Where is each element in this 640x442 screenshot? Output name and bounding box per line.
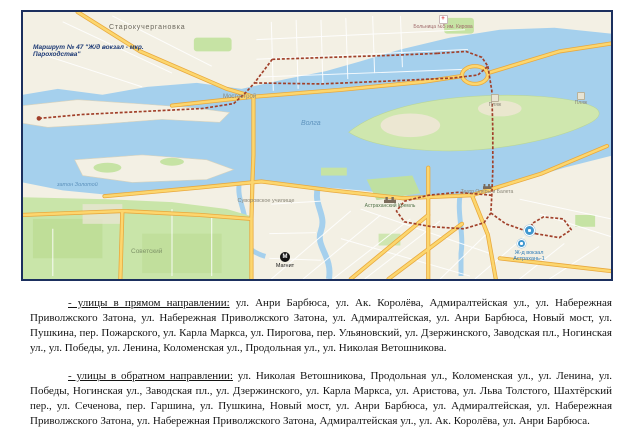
theatre-icon — [483, 184, 492, 189]
gardens-label: Советский — [131, 248, 162, 255]
route-title-label: Маршрут № 47 "Ж/д вокзал - мкр. Пароходс… — [33, 44, 145, 59]
kremlin-icon — [384, 197, 396, 203]
beach-icon — [491, 94, 499, 102]
gardens-area — [23, 197, 253, 279]
theatre-label: Театр Оперы и Балета — [459, 184, 515, 196]
river-label: Волга — [301, 120, 321, 128]
hospital-poi: + Больница №5 им. Кирова — [405, 15, 481, 31]
beach-icon — [577, 92, 585, 100]
forward-direction-lead: - улицы в прямом направлении: — [68, 297, 230, 309]
district-label: Мостострой — [223, 94, 256, 101]
beach-label-text: Пляж — [575, 100, 588, 106]
train-station-icon-2 — [517, 239, 526, 248]
backward-direction-paragraph: - улицы в обратном направлении: ул. Нико… — [30, 369, 612, 429]
theatre-label-text: Театр Оперы и Балета — [461, 189, 514, 195]
hospital-label-text: Больница №5 им. Кирова — [413, 24, 472, 30]
beach-label-text: Пляж — [489, 102, 502, 108]
route-map: Старокучергановка Маршрут № 47 "Ж/д вокз… — [21, 10, 613, 281]
store-poi: М Магнит — [269, 252, 301, 269]
beach-poi-2: Пляж — [571, 92, 591, 107]
kremlin-label-text: Астраханский Кремль — [365, 203, 416, 209]
station-label: Ж-д вокзал Астрахань-1 — [499, 250, 559, 263]
school-label: Суворовское училище — [235, 198, 297, 204]
route-start-marker — [37, 116, 42, 121]
backward-direction-lead: - улицы в обратном направлении: — [68, 370, 233, 382]
store-label-text: Магнит — [276, 263, 294, 269]
route-title-line1: Маршрут № 47 "Ж/д вокзал - мкр. — [33, 44, 144, 51]
street-list-section: - улицы в прямом направлении: ул. Анри Б… — [30, 296, 612, 442]
train-station-icon — [524, 225, 535, 236]
bay-label: затон Золотой — [57, 182, 98, 188]
store-icon: М — [280, 252, 290, 262]
route-document-page: Старокучергановка Маршрут № 47 "Ж/д вокз… — [0, 0, 640, 422]
hospital-cross-icon: + — [439, 15, 448, 24]
kremlin-label: Астраханский Кремль — [353, 197, 427, 210]
beach-poi-1: Пляж — [485, 94, 505, 109]
forward-direction-paragraph: - улицы в прямом направлении: ул. Анри Б… — [30, 296, 612, 356]
route-title-line2: Пароходства" — [33, 51, 80, 58]
town-label: Старокучергановка — [109, 24, 185, 32]
